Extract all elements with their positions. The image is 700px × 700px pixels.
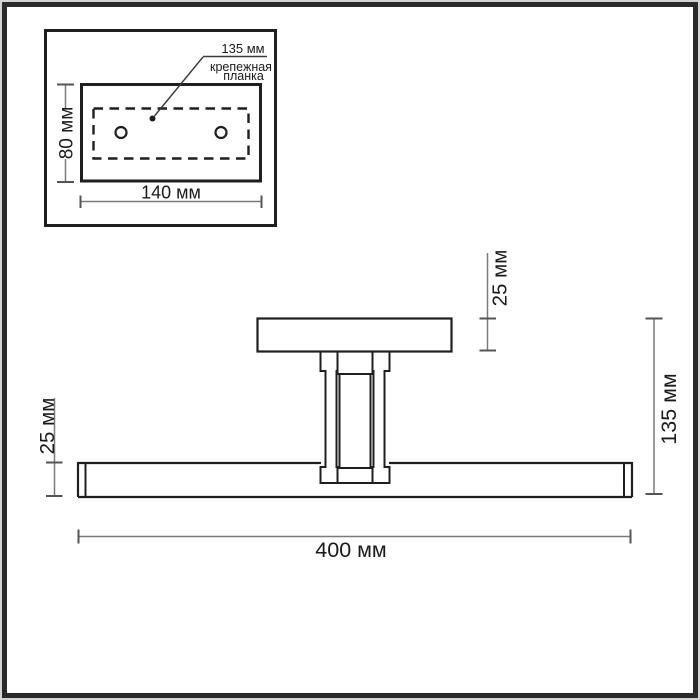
dim-bar-height-label: 25 мм xyxy=(36,398,59,455)
stem-bottom-cap xyxy=(338,468,373,483)
stem-tube-fill xyxy=(341,373,370,470)
post-left-stem-fill xyxy=(327,370,336,469)
screw-hole-left xyxy=(116,127,127,138)
dim-plate-width-label: 140 мм xyxy=(141,183,201,203)
mounting-bracket-dashed-outline xyxy=(94,109,249,159)
dim-overall-height: 135 мм xyxy=(646,319,682,495)
mounting-plate-inset: 135 мм крепежная планка 80 мм 140 мм xyxy=(46,31,276,226)
canopy-outline xyxy=(258,319,452,352)
post-left-top-flange xyxy=(321,352,338,372)
bracket-caption-line2: планка xyxy=(223,69,264,83)
stem-collar xyxy=(338,352,373,375)
hole-spacing-label: 135 мм xyxy=(221,41,264,56)
dim-bar-height: 25 мм xyxy=(36,398,63,497)
dim-overall-height-label: 135 мм xyxy=(657,373,681,444)
dim-canopy-height-label: 25 мм xyxy=(489,250,512,307)
post-left-bottom-flange xyxy=(321,467,338,483)
technical-drawing: 135 мм крепежная планка 80 мм 140 мм xyxy=(0,0,700,700)
mounting-plate-outline xyxy=(82,85,261,182)
fixture-front-view: 25 мм 135 мм 25 мм 400 мм xyxy=(36,250,681,562)
screw-hole-right xyxy=(216,127,227,138)
post-right-stem-fill xyxy=(375,370,384,469)
leader-line xyxy=(155,57,204,116)
dim-plate-height-label: 80 мм xyxy=(57,107,78,160)
leader-dot xyxy=(150,116,156,122)
dim-canopy-height: 25 мм xyxy=(480,250,512,352)
dim-overall-width-label: 400 мм xyxy=(315,538,386,562)
post-right-top-flange xyxy=(373,352,390,372)
dim-overall-width: 400 мм xyxy=(78,530,631,563)
post-right-bottom-flange xyxy=(373,467,390,483)
spec-sheet-canvas: 135 мм крепежная планка 80 мм 140 мм xyxy=(0,0,700,700)
